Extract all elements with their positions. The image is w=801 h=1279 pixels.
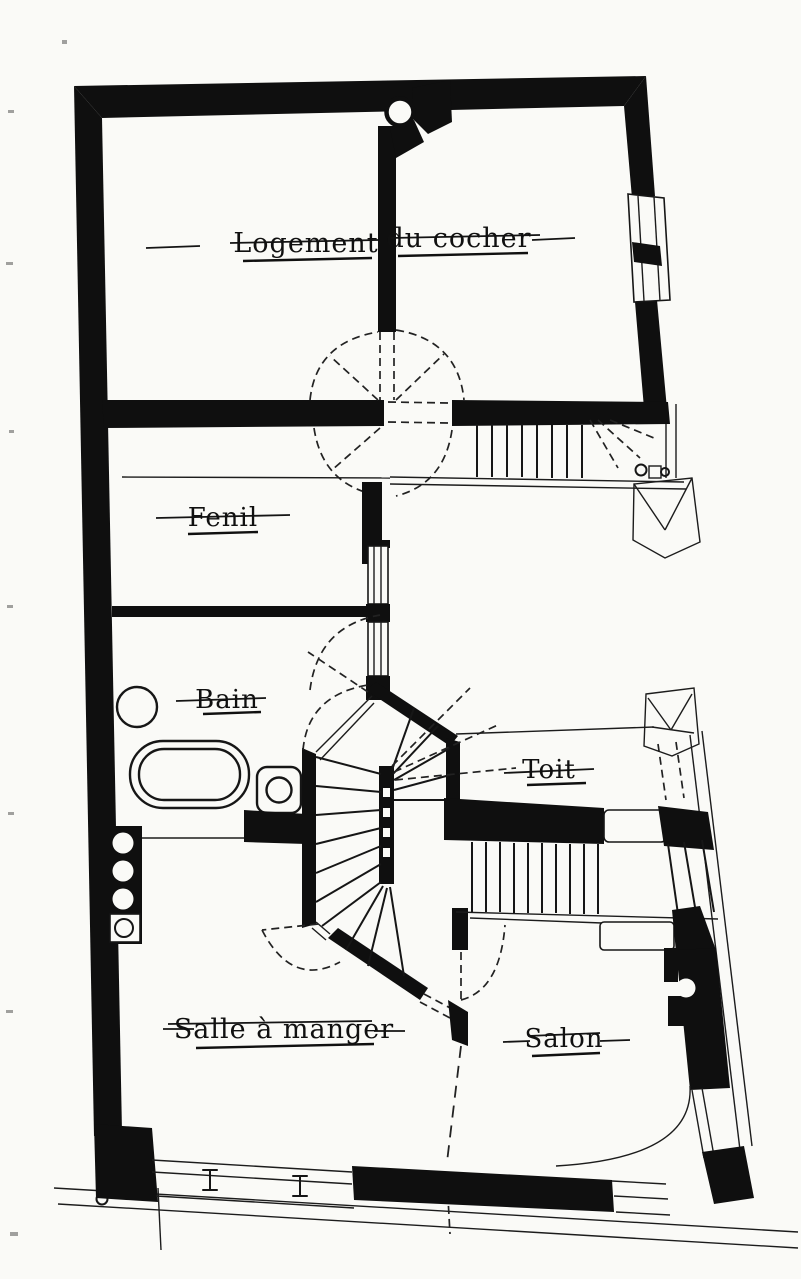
newel-post-circle <box>636 465 647 476</box>
stair-direction-arrow-upper <box>633 478 700 558</box>
chimney-flue-circle <box>387 99 414 126</box>
chimney-breast <box>412 80 452 134</box>
scan-specks <box>6 40 67 1236</box>
window-mullion-mark-2 <box>293 1176 307 1196</box>
label-salle-a-manger: Salle à manger <box>163 1014 405 1048</box>
winder-wall-left <box>302 748 316 928</box>
window-right-wall <box>628 194 670 302</box>
floor-plan-drawing: Logement du cocher Fenil Bain Toit Salle… <box>0 0 801 1279</box>
toit-bottom-wall <box>444 798 604 844</box>
label-text-bain: Bain <box>195 685 259 715</box>
wall-corridor-right <box>452 400 670 426</box>
toilet <box>257 767 301 813</box>
corner-block-bottom-left <box>94 1124 158 1202</box>
wall-fenil-bain-divider <box>112 606 368 617</box>
rounded-corner <box>556 1086 690 1166</box>
label-toit: Toit <box>504 755 594 785</box>
glazed-partition-wall <box>366 540 390 700</box>
bain-lower-walls <box>98 810 306 944</box>
label-text-salon: Salon <box>524 1024 603 1054</box>
winder-wall-bottom <box>328 928 428 1000</box>
flue-circle-salon <box>677 979 696 998</box>
label-text-fenil: Fenil <box>188 503 258 533</box>
floor-plan-page: Logement du cocher Fenil Bain Toit Salle… <box>0 0 801 1279</box>
bottom-wall <box>94 1124 670 1215</box>
label-logement-du-cocher: Logement du cocher <box>146 223 575 261</box>
label-fenil: Fenil <box>156 503 290 534</box>
newel-post <box>379 766 394 884</box>
label-text-logement: Logement <box>233 228 378 259</box>
stair-landing-step <box>604 810 666 842</box>
salle-salon-divider-dashed <box>447 1046 461 1162</box>
bathtub <box>130 741 249 808</box>
sink <box>117 687 157 727</box>
wall-corridor-left <box>102 400 384 428</box>
bottom-wall-solid <box>352 1166 614 1212</box>
label-text-salle-a-manger: Salle à manger <box>174 1014 394 1045</box>
upper-staircase <box>390 420 700 558</box>
wall-top <box>74 76 646 118</box>
corner-block-bottom-right <box>702 1146 754 1204</box>
salon-entry-step <box>600 922 674 950</box>
winder-staircase <box>262 615 516 1234</box>
label-text-toit: Toit <box>522 755 576 785</box>
window-mullion-mark-1 <box>203 1170 217 1190</box>
label-bain: Bain <box>176 685 266 715</box>
label-text-du-cocher: du cocher <box>386 223 531 254</box>
label-salon: Salon <box>503 1024 630 1056</box>
